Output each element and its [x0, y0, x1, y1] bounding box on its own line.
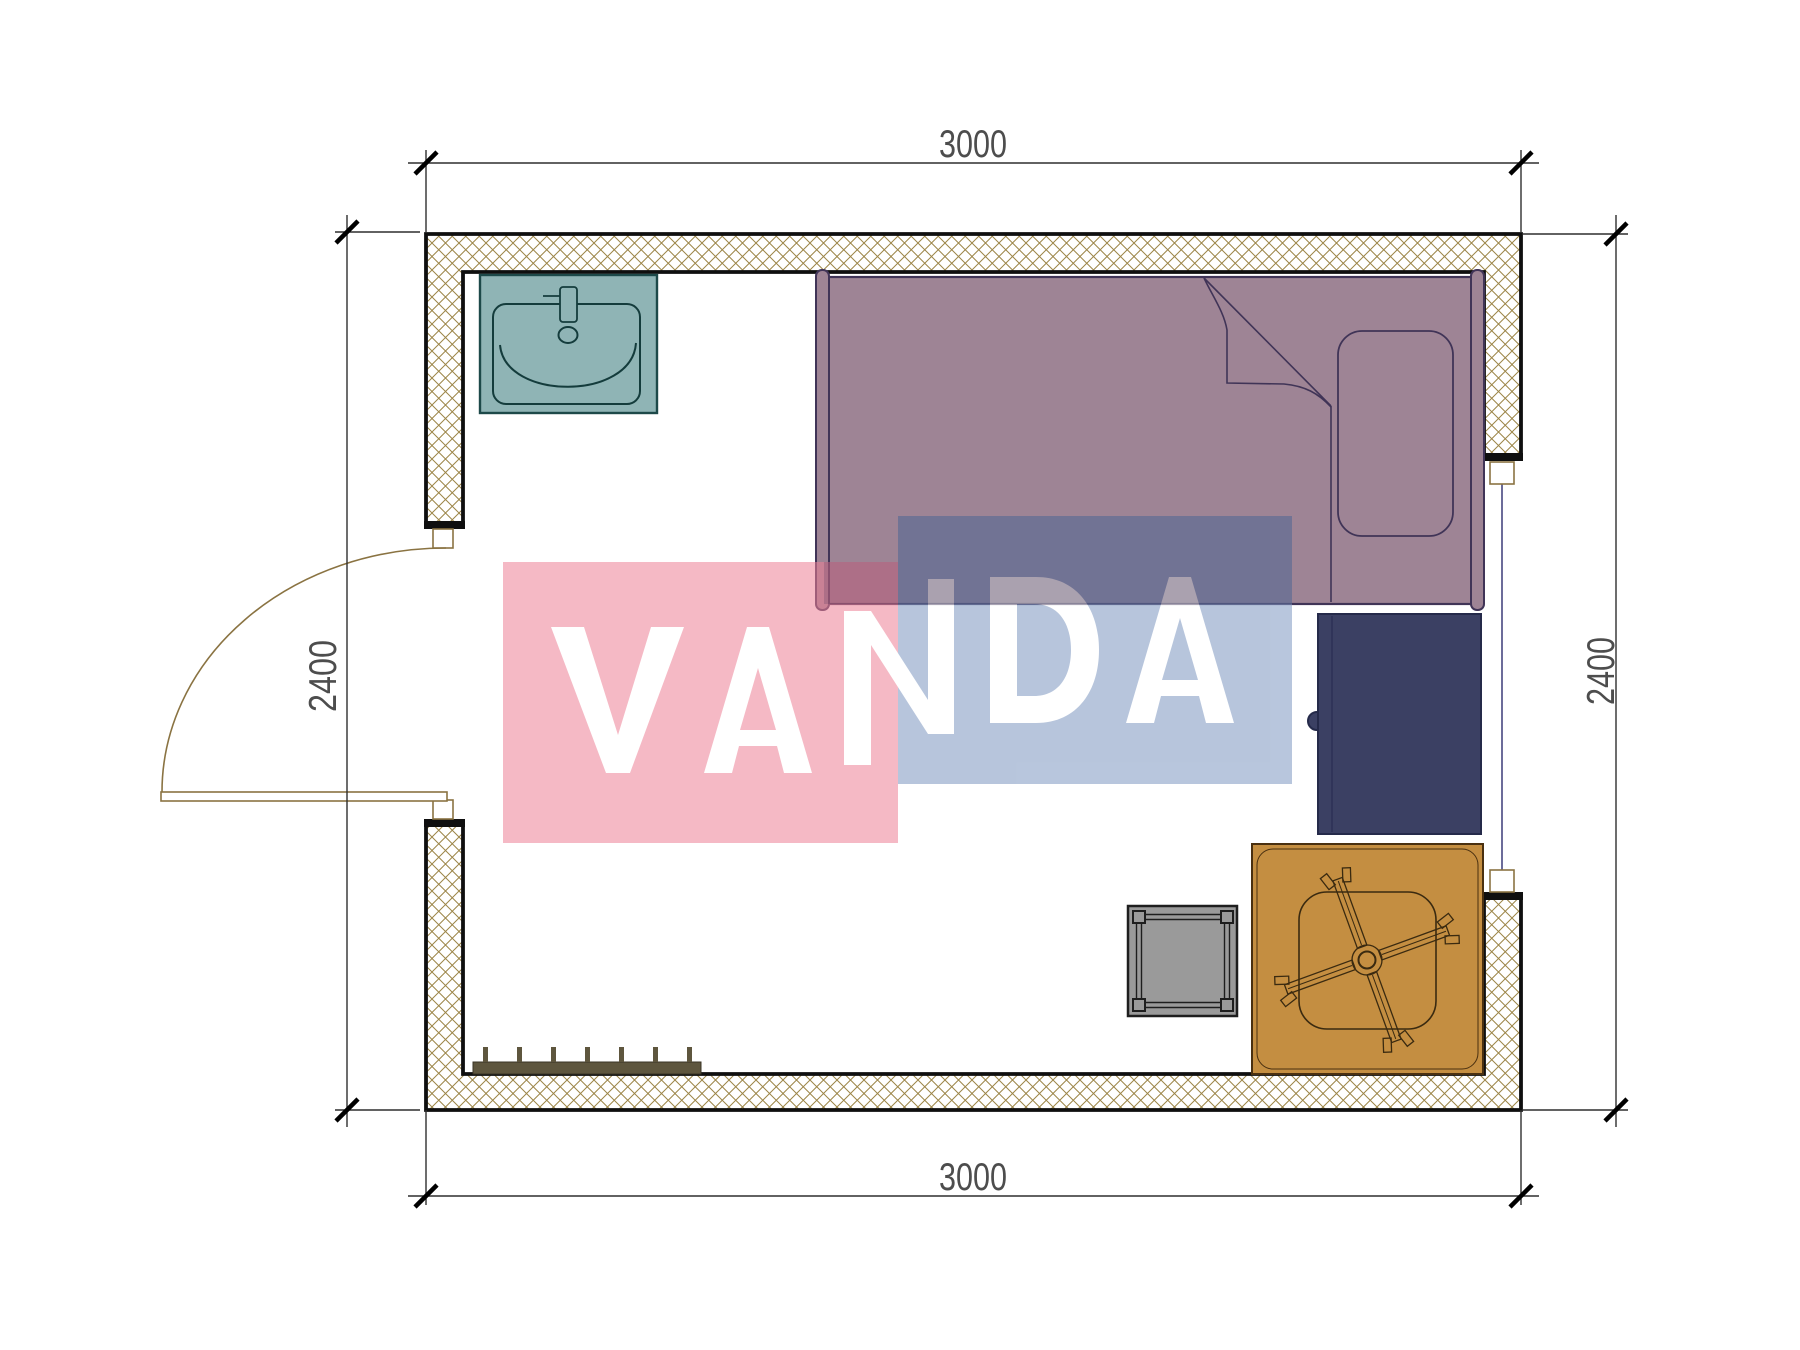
svg-text:2400: 2400 — [1580, 637, 1623, 705]
svg-text:3000: 3000 — [939, 1156, 1007, 1199]
svg-text:3000: 3000 — [939, 123, 1007, 166]
svg-text:2400: 2400 — [302, 640, 345, 712]
